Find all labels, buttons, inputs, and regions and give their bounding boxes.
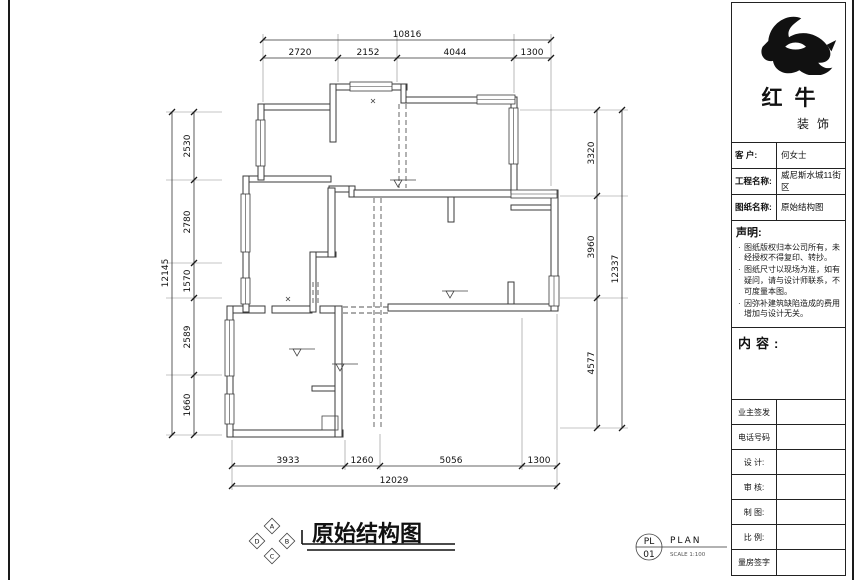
field-value bbox=[777, 450, 845, 474]
dim-right-total: 12337 bbox=[611, 255, 621, 284]
field-row-audit: 审 核: bbox=[732, 475, 845, 500]
drawing-name-label: 图纸名称: bbox=[732, 195, 777, 220]
dim-bottom-seg-1: 1260 bbox=[351, 456, 374, 466]
dim-top-seg-0: 2720 bbox=[289, 48, 312, 58]
dim-left-seg-0: 2530 bbox=[183, 134, 193, 157]
field-value bbox=[777, 500, 845, 524]
dim-top-seg-1: 2152 bbox=[357, 48, 380, 58]
dimension-chain-top: 10816 2720 2152 4044 1300 bbox=[260, 30, 554, 61]
field-value bbox=[777, 525, 845, 549]
dim-bottom-seg-3: 1300 bbox=[528, 456, 551, 466]
field-value bbox=[777, 400, 845, 424]
dim-top-total: 10816 bbox=[393, 30, 422, 40]
dim-left-total: 12145 bbox=[161, 259, 171, 288]
field-row-draft: 制 图: bbox=[732, 500, 845, 525]
bull-logo-icon bbox=[741, 9, 837, 75]
project-name-row: 工程名称: 威尼斯水城11街区 bbox=[732, 169, 845, 195]
dim-bottom-total: 12029 bbox=[380, 476, 409, 486]
title-block-panel: 红牛 装饰 客 户: 何女士 工程名称: 威尼斯水城11街区 图纸名称: 原始结… bbox=[731, 2, 846, 576]
content-box: 内容: bbox=[732, 328, 845, 400]
compass-letter-a: A bbox=[270, 523, 275, 531]
sheet-border-right bbox=[852, 0, 854, 580]
project-name-label: 工程名称: bbox=[732, 169, 777, 194]
dim-left-seg-3: 2589 bbox=[183, 325, 193, 348]
project-name-value: 威尼斯水城11街区 bbox=[777, 169, 845, 194]
field-row-phone: 电话号码 bbox=[732, 425, 845, 450]
company-subname: 装饰 bbox=[732, 115, 845, 132]
drawing-name-value: 原始结构图 bbox=[777, 195, 845, 220]
dim-bottom-seg-0: 3933 bbox=[277, 456, 300, 466]
compass-icon: A B C D bbox=[249, 518, 295, 564]
statement-item: 因弥补建筑缺陷造成的费用增加与设计无关。 bbox=[736, 299, 841, 321]
dim-top-seg-2: 4044 bbox=[444, 48, 467, 58]
field-row-scale: 比 例: bbox=[732, 525, 845, 550]
dashed-openings bbox=[313, 104, 406, 428]
field-value bbox=[777, 550, 845, 575]
dim-bottom-seg-2: 5056 bbox=[440, 456, 463, 466]
field-value bbox=[777, 425, 845, 449]
dimension-chain-bottom: 3933 1260 5056 1300 12029 bbox=[229, 456, 560, 489]
stamp-number: 01 bbox=[643, 550, 654, 560]
compass-letter-b: B bbox=[285, 538, 289, 546]
field-row-design: 设 计: bbox=[732, 450, 845, 475]
client-row: 客 户: 何女士 bbox=[732, 143, 845, 169]
dimension-chain-right: 3320 3960 4577 12337 bbox=[587, 107, 625, 431]
statement-title: 声明: bbox=[736, 224, 841, 240]
field-label: 制 图: bbox=[732, 500, 777, 524]
floor-plan-windows bbox=[225, 82, 559, 424]
stamp-code: PL bbox=[644, 537, 654, 547]
dim-right-seg-2: 4577 bbox=[587, 352, 597, 375]
dimension-chain-left: 12145 2530 2780 1570 2589 1660 bbox=[161, 109, 197, 438]
dim-right-seg-0: 3320 bbox=[587, 141, 597, 164]
company-logo-box: 红牛 装饰 bbox=[732, 3, 845, 143]
level-mark-symbols bbox=[286, 99, 468, 371]
field-value bbox=[777, 475, 845, 499]
dim-left-seg-2: 1570 bbox=[183, 269, 193, 292]
floor-plan-walls bbox=[227, 84, 558, 437]
client-value: 何女士 bbox=[777, 143, 845, 168]
company-name: 红牛 bbox=[732, 82, 845, 112]
dim-right-seg-1: 3960 bbox=[587, 235, 597, 258]
drawing-title: 原始结构图 bbox=[302, 521, 455, 550]
compass-letter-c: C bbox=[270, 553, 275, 561]
field-label: 设 计: bbox=[732, 450, 777, 474]
extension-lines bbox=[166, 34, 628, 490]
field-label: 业主签发 bbox=[732, 400, 777, 424]
compass-letter-d: D bbox=[254, 538, 259, 546]
stamp-label: PLAN bbox=[670, 536, 702, 546]
dim-top-seg-3: 1300 bbox=[521, 48, 544, 58]
sheet-number-stamp: PL 01 PLAN SCALE 1:100 bbox=[636, 534, 727, 560]
statement-item: 图纸版权归本公司所有，未经授权不得复印、转抄。 bbox=[736, 243, 841, 265]
client-label: 客 户: bbox=[732, 143, 777, 168]
field-label: 电话号码 bbox=[732, 425, 777, 449]
dim-left-seg-1: 2780 bbox=[183, 210, 193, 233]
statement-item: 图纸尺寸以现场为准，如有疑问，请与设计师联系，不可度量本图。 bbox=[736, 265, 841, 297]
field-label: 量房签字 bbox=[732, 550, 777, 575]
dim-left-seg-4: 1660 bbox=[183, 393, 193, 416]
field-row-measure-sign: 量房签字 bbox=[732, 550, 845, 575]
field-label: 审 核: bbox=[732, 475, 777, 499]
content-title: 内容: bbox=[738, 333, 839, 352]
statement-box: 声明: 图纸版权归本公司所有，未经授权不得复印、转抄。 图纸尺寸以现场为准，如有… bbox=[732, 221, 845, 329]
stamp-scale: SCALE 1:100 bbox=[670, 552, 706, 558]
floor-plan-drawing: 10816 2720 2152 4044 1300 12145 2530 278… bbox=[0, 0, 732, 580]
field-row-owner-sign: 业主签发 bbox=[732, 400, 845, 425]
drawing-name-row: 图纸名称: 原始结构图 bbox=[732, 195, 845, 221]
field-label: 比 例: bbox=[732, 525, 777, 549]
drawing-title-text: 原始结构图 bbox=[312, 521, 422, 547]
